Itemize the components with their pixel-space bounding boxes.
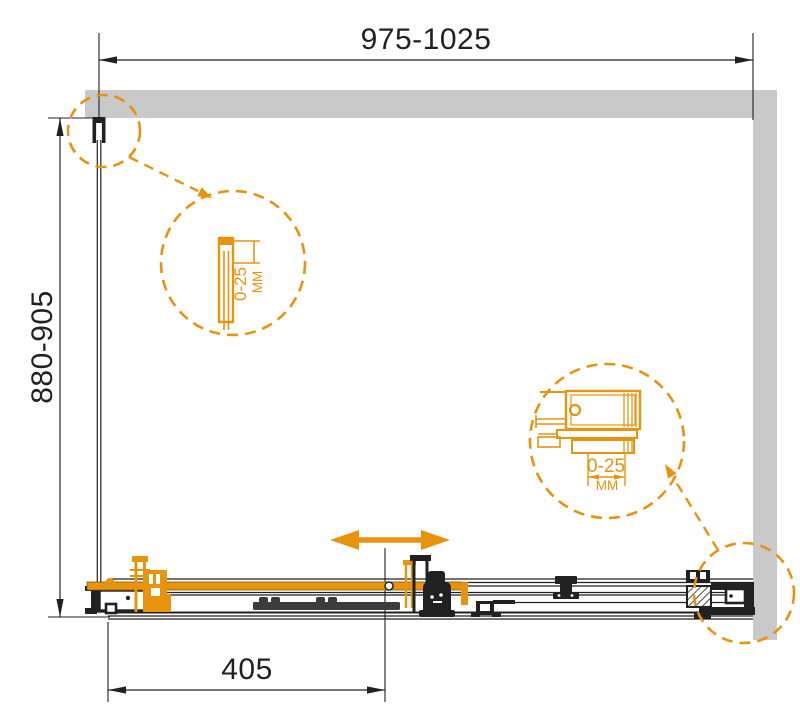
left-adjust-unit: MM: [250, 271, 265, 294]
technical-drawing: 975-1025 880-905 405: [0, 0, 800, 725]
door-guide-bracket: [471, 600, 515, 617]
left-adjust-value: 0-25: [231, 267, 250, 301]
slide-direction-arrow-icon: [330, 530, 450, 550]
right-adjust-value: 0-25: [587, 456, 625, 477]
wall-profile-top: [93, 117, 106, 143]
detail-callout-right: 0-25 MM: [530, 364, 684, 518]
depth-dimension-label: 880-905: [26, 290, 59, 404]
door-track-assembly: [85, 555, 755, 619]
side-glass-panel: [93, 117, 106, 612]
right-wall: [753, 90, 777, 640]
roller-mid-right: [553, 576, 579, 599]
sliding-door-glass: [253, 597, 400, 610]
width-dimension-label: 975-1025: [361, 23, 492, 56]
diagram-canvas: 975-1025 880-905 405: [0, 0, 800, 725]
callout-leader-left: [129, 157, 212, 198]
door-dimension-label: 405: [221, 653, 273, 686]
center-roller-carriage: [403, 555, 455, 617]
right-adjust-unit: MM: [596, 478, 619, 493]
detail-callout-left: 0-25 MM: [161, 191, 305, 335]
callout-leader-right: [665, 464, 718, 550]
back-wall: [85, 90, 777, 118]
